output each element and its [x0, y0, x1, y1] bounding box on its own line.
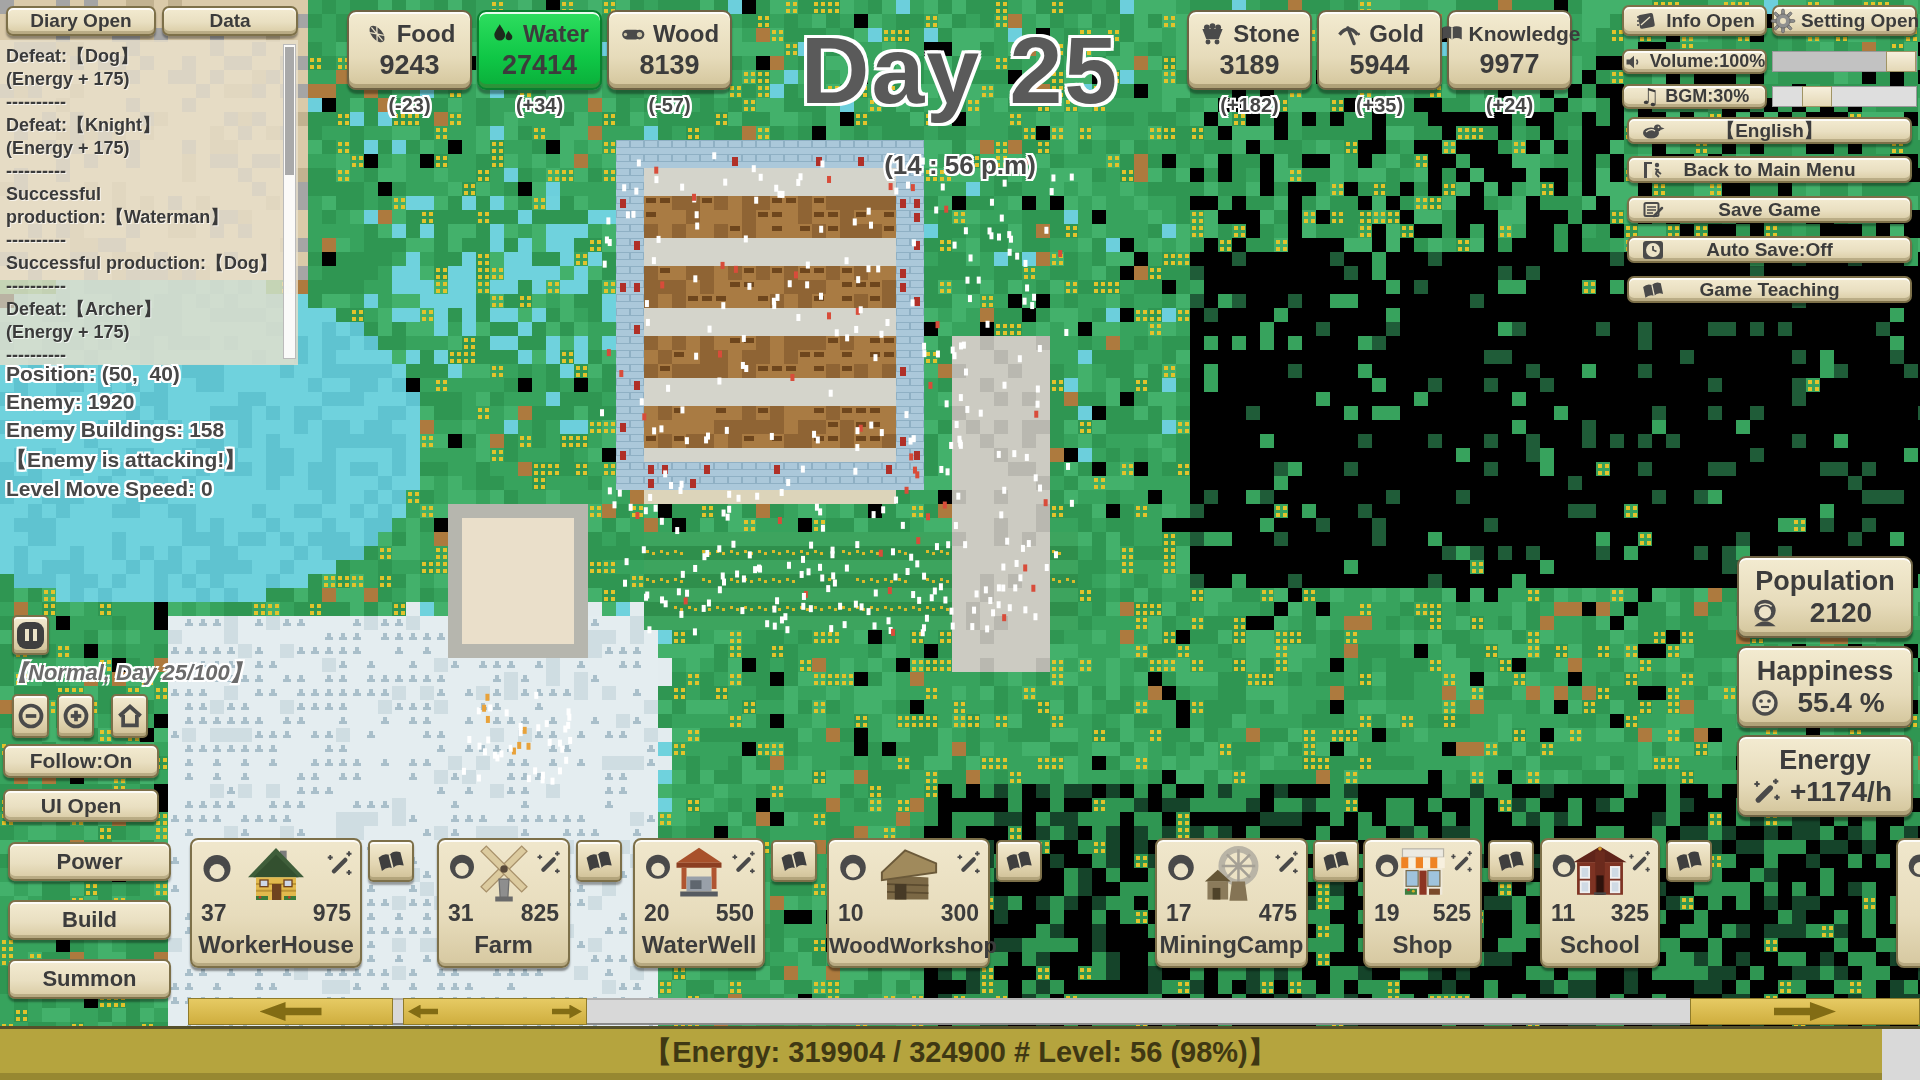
- bgm-label: BGM:30%: [1665, 86, 1749, 107]
- book-icon: [1321, 846, 1351, 876]
- log-line: Defeat:【Dog】: [6, 45, 278, 68]
- clock-icon: [1641, 238, 1665, 262]
- book-icon: [1496, 846, 1526, 876]
- wood-label: Wood: [653, 20, 719, 48]
- gold-value: 5944: [1349, 50, 1409, 81]
- log-line: Defeat:【Archer】: [6, 298, 278, 321]
- food-value: 9243: [379, 50, 439, 81]
- log-line: production:【Waterman】: [6, 206, 278, 229]
- population-label: Population: [1755, 566, 1894, 597]
- scroll-right-arrow-icon: [1774, 1002, 1836, 1021]
- school-cost: 325: [1611, 900, 1649, 927]
- stone-icon: [1199, 20, 1226, 47]
- zoom-in-icon: [62, 702, 90, 730]
- energy-box: Energy +1174/h: [1737, 735, 1913, 817]
- language-bird-icon: [1641, 119, 1665, 143]
- woodworkshop-info-book-button[interactable]: [996, 840, 1042, 882]
- bgm-slider-thumb[interactable]: [1802, 86, 1832, 107]
- gold-icon: [1335, 20, 1362, 47]
- workerhouse-info-book-button[interactable]: [368, 840, 414, 882]
- building-card-miningcamp[interactable]: 17 475 MiningCamp: [1155, 838, 1308, 968]
- miningcamp-cost: 475: [1259, 900, 1297, 927]
- workerhouse-cost: 975: [313, 900, 351, 927]
- building-art-woodworkshop: [878, 844, 940, 906]
- knowledge-value: 9977: [1479, 49, 1539, 80]
- thumb-left-arrow-icon: [408, 1005, 438, 1019]
- log-line: (Energy + 175): [6, 68, 278, 91]
- building-card-partial[interactable]: [1896, 838, 1920, 968]
- wood-delta: (-57): [607, 94, 732, 117]
- bgm-slider[interactable]: [1772, 86, 1917, 107]
- info-open-label: Info Open: [1666, 10, 1755, 32]
- book-icon: [376, 846, 406, 876]
- log-line: Successful production:【Dog】: [6, 252, 278, 275]
- log-line: (Energy + 175): [6, 321, 278, 344]
- knowledge-delta: (+24): [1447, 94, 1572, 117]
- build-button[interactable]: Build: [8, 900, 171, 940]
- knowledge-resource-box[interactable]: Knowledge 9977: [1447, 10, 1572, 90]
- data-button[interactable]: Data: [162, 6, 298, 36]
- power-label: Power: [56, 849, 122, 875]
- building-card-waterwell[interactable]: 20 550 WaterWell: [633, 838, 765, 968]
- music-note-icon: ♫: [1640, 84, 1660, 109]
- woodworkshop-name: WoodWorkshop: [829, 933, 988, 959]
- woodworkshop-count: 10: [838, 900, 864, 927]
- log-line: Defeat:【Knight】: [6, 114, 278, 137]
- wand-icon: [1272, 850, 1300, 878]
- book-icon: [1674, 846, 1704, 876]
- thumb-right-arrow-icon: [552, 1005, 582, 1019]
- ui-open-label: UI Open: [41, 794, 122, 818]
- stone-delta: (+182): [1187, 94, 1312, 117]
- scroll-left-arrow-icon: [260, 1002, 322, 1021]
- building-art-farm: [474, 844, 534, 904]
- happiness-smiley-icon: [1749, 687, 1781, 719]
- building-card-school[interactable]: 11 325 School: [1540, 838, 1660, 968]
- position-text: Position: (50, 40): [6, 362, 180, 386]
- auto-save-label: Auto Save:Off: [1706, 239, 1833, 261]
- wood-resource-box[interactable]: Wood 8139: [607, 10, 732, 90]
- food-resource-box[interactable]: Food 9243: [347, 10, 472, 90]
- wood-icon: [620, 21, 646, 47]
- zoom-in-button[interactable]: [57, 694, 94, 738]
- farm-cost: 825: [521, 900, 559, 927]
- wood-value: 8139: [639, 50, 699, 81]
- school-count: 11: [1551, 900, 1575, 927]
- happiness-label: Happiness: [1757, 656, 1894, 687]
- zoom-out-button[interactable]: [12, 694, 49, 738]
- home-button[interactable]: [111, 694, 148, 738]
- building-card-shop[interactable]: 19 525 Shop: [1363, 838, 1482, 968]
- waterwell-count: 20: [644, 900, 670, 927]
- building-art-shop: [1394, 844, 1452, 902]
- game-teaching-label: Game Teaching: [1699, 279, 1839, 301]
- save-game-button[interactable]: Save Game: [1627, 196, 1912, 223]
- farm-name: Farm: [439, 931, 568, 959]
- miningcamp-info-book-button[interactable]: [1313, 840, 1359, 882]
- farm-info-book-button[interactable]: [576, 840, 622, 882]
- wand-icon: [954, 850, 982, 878]
- book-icon: [779, 846, 809, 876]
- enemy-attacking-alert: 【Enemy is attacking!】: [6, 446, 245, 474]
- population-icon: [1749, 597, 1781, 629]
- event-log-panel: Defeat:【Dog】 (Energy + 175) ---------- D…: [0, 40, 298, 365]
- building-scrollbar-thumb[interactable]: [403, 998, 587, 1025]
- energy-level-bar: 【Energy: 319904 / 324900 # Level: 56 (98…: [0, 1026, 1920, 1080]
- exit-door-icon: [1641, 158, 1665, 182]
- shop-count: 19: [1374, 900, 1400, 927]
- woodworkshop-cost: 300: [941, 900, 979, 927]
- log-line: ----------: [6, 91, 278, 114]
- wand-icon: [324, 850, 354, 880]
- wand-icon: [729, 850, 757, 878]
- water-icon: [490, 21, 516, 47]
- population-box: Population 2120: [1737, 556, 1913, 638]
- volume-slider[interactable]: [1772, 51, 1917, 72]
- energy-value: +1174/h: [1781, 776, 1901, 808]
- shop-info-book-button[interactable]: [1488, 840, 1534, 882]
- gold-delta: (+35): [1317, 94, 1442, 117]
- volume-button[interactable]: Volume:100%: [1622, 49, 1767, 74]
- game-teaching-button[interactable]: Game Teaching: [1627, 276, 1912, 303]
- wand-icon: [534, 850, 562, 878]
- zoom-out-icon: [17, 702, 45, 730]
- speaker-icon: [1624, 52, 1644, 72]
- worker-person-icon: [1164, 852, 1198, 886]
- building-card-woodworkshop[interactable]: 10 300 WoodWorkshop: [827, 838, 990, 968]
- school-name: School: [1542, 931, 1658, 959]
- waterwell-cost: 550: [716, 900, 754, 927]
- miningcamp-count: 17: [1166, 900, 1192, 927]
- farm-count: 31: [448, 900, 474, 927]
- home-icon: [115, 701, 145, 731]
- water-resource-box[interactable]: Water 27414: [477, 10, 602, 90]
- building-art-waterwell: [669, 844, 729, 904]
- food-delta: (-23): [347, 94, 472, 117]
- log-line: (Energy + 175): [6, 137, 278, 160]
- energy-label: Energy: [1779, 745, 1871, 776]
- building-card-workerhouse[interactable]: 37 975 WorkerHouse: [190, 838, 362, 968]
- bgm-button[interactable]: ♫ BGM:30%: [1622, 84, 1767, 109]
- water-delta: (+34): [477, 94, 602, 117]
- wand-icon: [1448, 850, 1474, 876]
- setting-open-label: Setting Open: [1801, 10, 1919, 32]
- back-to-main-menu-label: Back to Main Menu: [1683, 159, 1855, 181]
- info-open-button[interactable]: Info Open: [1622, 5, 1767, 36]
- follow-toggle-label: Follow:On: [30, 749, 133, 773]
- book-icon: [584, 846, 614, 876]
- school-info-book-button[interactable]: [1666, 840, 1712, 882]
- food-label: Food: [397, 20, 456, 48]
- pause-button[interactable]: [12, 615, 49, 655]
- pause-icon: [17, 622, 44, 649]
- log-line: ----------: [6, 160, 278, 183]
- stone-resource-box[interactable]: Stone 3189: [1187, 10, 1312, 90]
- stone-label: Stone: [1233, 20, 1300, 48]
- water-label: Water: [523, 20, 589, 48]
- knowledge-icon: [1439, 21, 1465, 47]
- miningcamp-name: MiningCamp: [1157, 931, 1306, 959]
- building-card-farm[interactable]: 31 825 Farm: [437, 838, 570, 968]
- back-to-main-menu-button[interactable]: Back to Main Menu: [1627, 156, 1912, 183]
- teaching-book-icon: [1641, 278, 1665, 302]
- power-button[interactable]: Power: [8, 842, 171, 881]
- happiness-value: 55.4 %: [1781, 687, 1901, 719]
- energy-bar-text: 【Energy: 319904 / 324900 # Level: 56 (98…: [0, 1029, 1920, 1076]
- log-line: ----------: [6, 275, 278, 298]
- diary-open-label: Diary Open: [30, 10, 131, 32]
- mode-day-text: 【Normal, Day 25/100】: [6, 658, 252, 688]
- shop-cost: 525: [1433, 900, 1471, 927]
- volume-label: Volume:100%: [1650, 51, 1766, 72]
- population-value: 2120: [1781, 597, 1901, 629]
- food-icon: [364, 21, 390, 47]
- building-art-workerhouse: [244, 844, 308, 908]
- enemy-count-text: Enemy: 1920: [6, 390, 134, 414]
- data-label: Data: [209, 10, 250, 32]
- move-speed-text: Level Move Speed: 0: [6, 477, 213, 501]
- stone-value: 3189: [1219, 50, 1279, 81]
- energy-wand-icon: [1749, 776, 1781, 808]
- log-scrollbar[interactable]: [283, 44, 296, 359]
- building-art-miningcamp: [1201, 844, 1263, 906]
- summon-button[interactable]: Summon: [8, 959, 171, 999]
- save-game-label: Save Game: [1718, 199, 1820, 221]
- happiness-box: Happiness 55.4 %: [1737, 646, 1913, 728]
- worker-person-icon: [1905, 852, 1920, 882]
- building-art-school: [1571, 844, 1629, 902]
- save-memo-icon: [1641, 198, 1665, 222]
- setting-open-button[interactable]: Setting Open: [1772, 5, 1917, 36]
- auto-save-button[interactable]: Auto Save:Off: [1627, 236, 1912, 263]
- waterwell-info-book-button[interactable]: [771, 840, 817, 882]
- language-button[interactable]: 【English】: [1627, 117, 1912, 144]
- workerhouse-count: 37: [201, 900, 227, 927]
- wand-icon: [1626, 850, 1652, 876]
- scroll-left-button[interactable]: [188, 998, 393, 1025]
- day-title: Day 25: [660, 16, 1260, 125]
- summon-label: Summon: [42, 966, 136, 992]
- log-scrollbar-thumb[interactable]: [285, 47, 294, 175]
- worker-person-icon: [199, 852, 235, 888]
- time-subtitle: (14 : 56 p.m): [760, 150, 1160, 181]
- water-value: 27414: [502, 50, 577, 81]
- gear-icon: [1770, 8, 1796, 34]
- book-icon: [1004, 846, 1034, 876]
- gold-label: Gold: [1369, 20, 1424, 48]
- waterwell-name: WaterWell: [635, 931, 763, 959]
- workerhouse-name: WorkerHouse: [192, 931, 360, 959]
- follow-toggle-button[interactable]: Follow:On: [3, 744, 159, 778]
- knowledge-label: Knowledge: [1469, 22, 1581, 46]
- shop-name: Shop: [1365, 931, 1480, 959]
- worker-person-icon: [836, 852, 870, 886]
- log-line: Successful: [6, 183, 278, 206]
- scroll-right-button[interactable]: [1690, 998, 1920, 1025]
- diary-open-button[interactable]: Diary Open: [6, 6, 156, 36]
- build-label: Build: [62, 907, 117, 933]
- log-line: ----------: [6, 229, 278, 252]
- enemy-buildings-text: Enemy Buildings: 158: [6, 418, 224, 442]
- volume-slider-thumb[interactable]: [1886, 51, 1916, 72]
- info-diary-icon: [1634, 9, 1658, 33]
- ui-open-button[interactable]: UI Open: [3, 789, 159, 822]
- language-label: 【English】: [1716, 118, 1823, 144]
- gold-resource-box[interactable]: Gold 5944: [1317, 10, 1442, 90]
